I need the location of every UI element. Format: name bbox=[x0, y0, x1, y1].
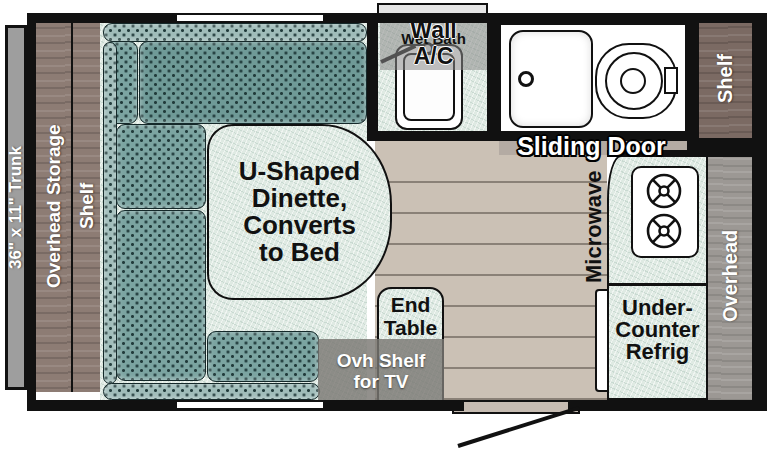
wall-wetbath-left bbox=[367, 23, 378, 137]
wall-bathroom-right bbox=[687, 23, 699, 140]
shelf-band-right: Shelf bbox=[699, 20, 752, 138]
trunk-label: 36" x 11" Trunk bbox=[8, 28, 24, 387]
wall-wetbath-bottom bbox=[367, 131, 499, 141]
window-bottom bbox=[177, 402, 323, 408]
shower-drain-icon bbox=[518, 71, 534, 87]
dinette-cushion-top-main bbox=[139, 41, 367, 124]
toilet-flush-icon bbox=[620, 68, 646, 94]
wall-ac-label: Wall A/C bbox=[380, 17, 487, 69]
cooktop-burners-icon bbox=[633, 168, 696, 255]
toilet-tank-icon bbox=[664, 67, 678, 94]
shelf-band-left: Shelf bbox=[71, 20, 100, 392]
shelf-left-label: Shelf bbox=[73, 20, 100, 392]
microwave-label: Microwave bbox=[579, 152, 609, 302]
wall-left bbox=[27, 13, 36, 411]
trunk-storage-band: 36" x 11" Trunk bbox=[5, 25, 27, 390]
wall-bottom-right bbox=[580, 400, 767, 411]
floorplan: 36" x 11" Trunk Overhead Storage Shelf U… bbox=[0, 0, 769, 450]
wall-top bbox=[27, 13, 767, 23]
dinette-cushion-bottom bbox=[207, 331, 319, 382]
counter-refrig-divider bbox=[607, 283, 708, 286]
dinette-cushion-left-b bbox=[116, 210, 206, 381]
dinette-cushion-back-left bbox=[103, 42, 117, 384]
wall-wetbath-right bbox=[487, 23, 499, 137]
overhead-band-right: Overhead bbox=[708, 152, 752, 400]
refrig-label: Under- Counter Refrig bbox=[609, 297, 706, 363]
dinette-table-label: U-Shaped Dinette, Converts to Bed bbox=[239, 158, 360, 266]
dinette-cushion-back-top bbox=[103, 23, 367, 42]
end-table-label: End Table bbox=[379, 289, 442, 339]
door-jamb-left bbox=[452, 400, 464, 411]
window-top bbox=[177, 15, 323, 21]
ovh-shelf-overlay: Ovh Shelf for TV bbox=[318, 339, 444, 402]
ovh-shelf-label: Ovh Shelf for TV bbox=[337, 350, 426, 392]
shelf-right-label: Shelf bbox=[699, 20, 752, 138]
wall-right bbox=[752, 13, 767, 411]
refrigerator-door bbox=[595, 289, 609, 392]
dinette-cushion-back-bottom bbox=[103, 383, 320, 400]
cooktop-icon bbox=[631, 166, 699, 258]
overhead-storage-band: Overhead Storage bbox=[36, 20, 71, 392]
dinette-table: U-Shaped Dinette, Converts to Bed bbox=[207, 124, 392, 300]
dinette-cushion-left-a bbox=[116, 124, 206, 209]
overhead-right-label: Overhead bbox=[708, 152, 752, 400]
sliding-door-label: Sliding Door bbox=[489, 132, 694, 161]
overhead-storage-label: Overhead Storage bbox=[36, 20, 71, 392]
